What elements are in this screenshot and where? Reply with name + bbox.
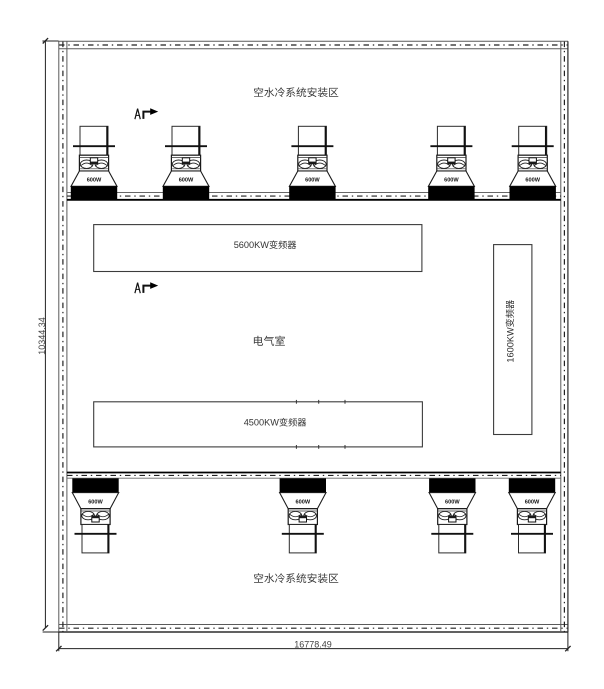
svg-text:600W: 600W (525, 177, 540, 183)
svg-text:600W: 600W (87, 177, 102, 183)
svg-text:600W: 600W (444, 177, 459, 183)
svg-text:5600KW: 5600KW (234, 240, 270, 250)
svg-text:600W: 600W (525, 499, 540, 505)
svg-text:16778.49: 16778.49 (294, 639, 332, 649)
svg-text:600W: 600W (88, 499, 103, 505)
svg-text:1600KW: 1600KW (505, 327, 515, 363)
svg-text:4500KW: 4500KW (244, 418, 280, 428)
svg-text:600W: 600W (295, 499, 310, 505)
svg-text:600W: 600W (445, 499, 460, 505)
svg-text:600W: 600W (179, 177, 194, 183)
svg-text:10344.34: 10344.34 (37, 317, 47, 355)
svg-text:600W: 600W (305, 177, 320, 183)
